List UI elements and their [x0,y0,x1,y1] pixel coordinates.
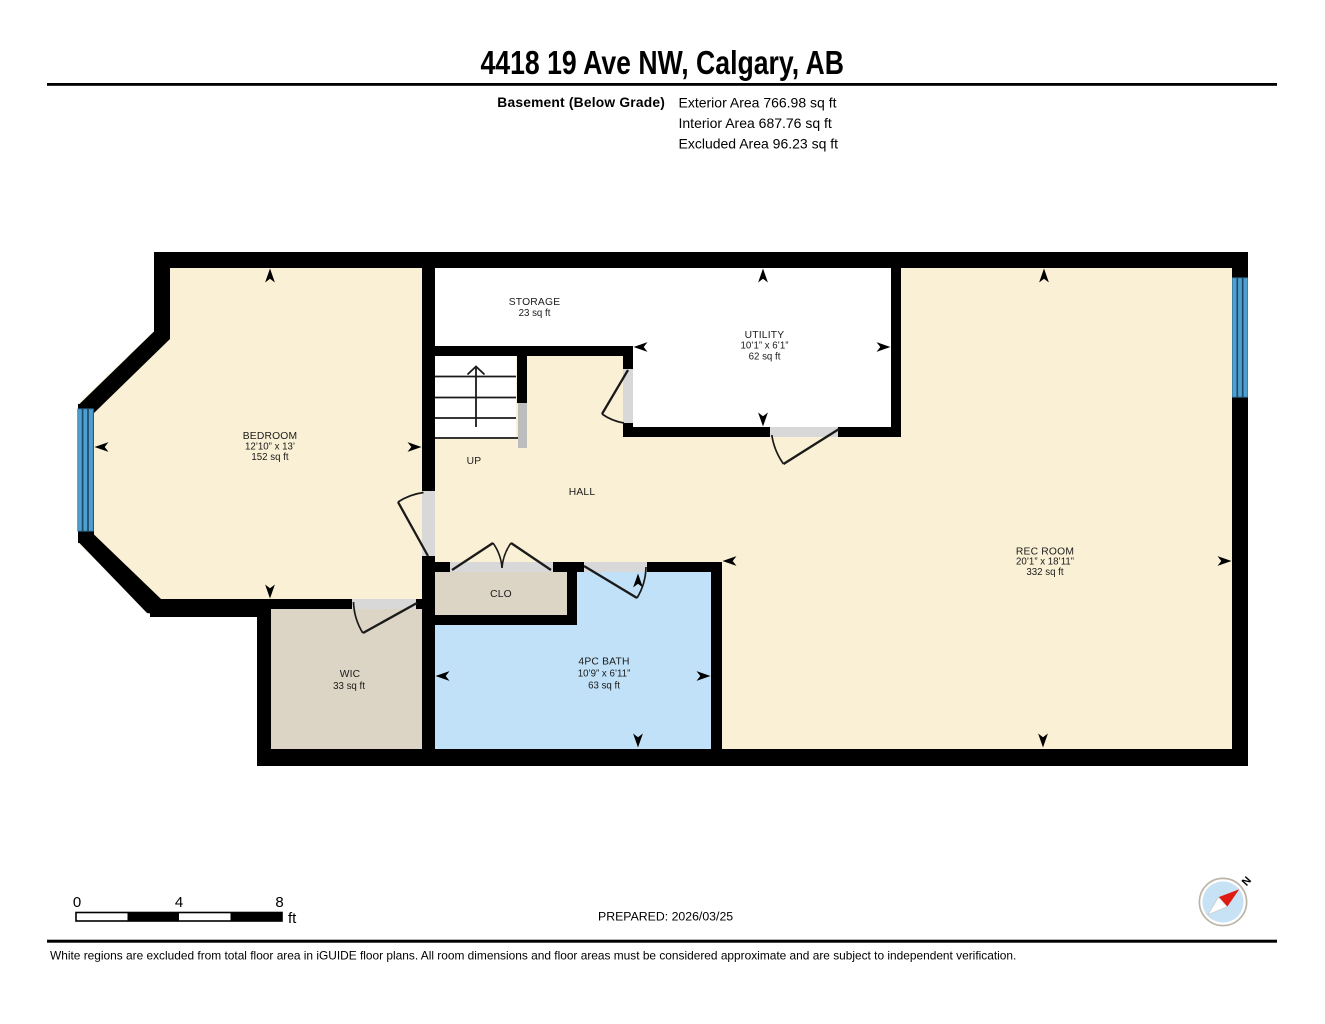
svg-text:62 sq ft: 62 sq ft [749,352,781,363]
svg-text:152 sq ft: 152 sq ft [251,452,288,463]
svg-text:BEDROOM: BEDROOM [243,431,298,442]
svg-text:332 sq ft: 332 sq ft [1026,567,1063,578]
svg-text:WIC: WIC [340,669,361,680]
svg-text:CLO: CLO [490,589,512,600]
svg-text:12’10” x 13’: 12’10” x 13’ [245,442,295,453]
svg-text:4418 19 Ave NW, Calgary, AB: 4418 19 Ave NW, Calgary, AB [481,44,845,81]
svg-text:UTILITY: UTILITY [745,330,785,341]
svg-text:STORAGE: STORAGE [509,297,561,308]
svg-text:23 sq ft: 23 sq ft [519,308,551,319]
svg-text:Excluded Area 96.23 sq ft: Excluded Area 96.23 sq ft [679,136,839,152]
svg-text:Exterior Area 766.98 sq ft: Exterior Area 766.98 sq ft [679,95,837,111]
svg-text:Interior Area 687.76 sq ft: Interior Area 687.76 sq ft [679,115,832,131]
svg-text:Basement (Below Grade): Basement (Below Grade) [497,95,665,110]
svg-text:10’9” x 6’11”: 10’9” x 6’11” [578,669,631,680]
svg-text:4: 4 [175,894,183,911]
svg-text:ft: ft [288,910,297,927]
svg-text:20’1” x 18’11”: 20’1” x 18’11” [1016,557,1074,568]
svg-text:4PC BATH: 4PC BATH [578,657,629,668]
svg-text:PREPARED: 2026/03/25: PREPARED: 2026/03/25 [598,910,733,924]
svg-text:UP: UP [467,456,482,467]
svg-text:HALL: HALL [569,487,596,498]
svg-text:33 sq ft: 33 sq ft [333,681,365,692]
svg-text:10’1” x 6’1”: 10’1” x 6’1” [741,341,789,352]
svg-text:8: 8 [275,894,283,911]
svg-text:0: 0 [73,894,81,911]
svg-text:63 sq ft: 63 sq ft [588,681,620,692]
svg-text:White regions are excluded fro: White regions are excluded from total fl… [50,949,1016,963]
